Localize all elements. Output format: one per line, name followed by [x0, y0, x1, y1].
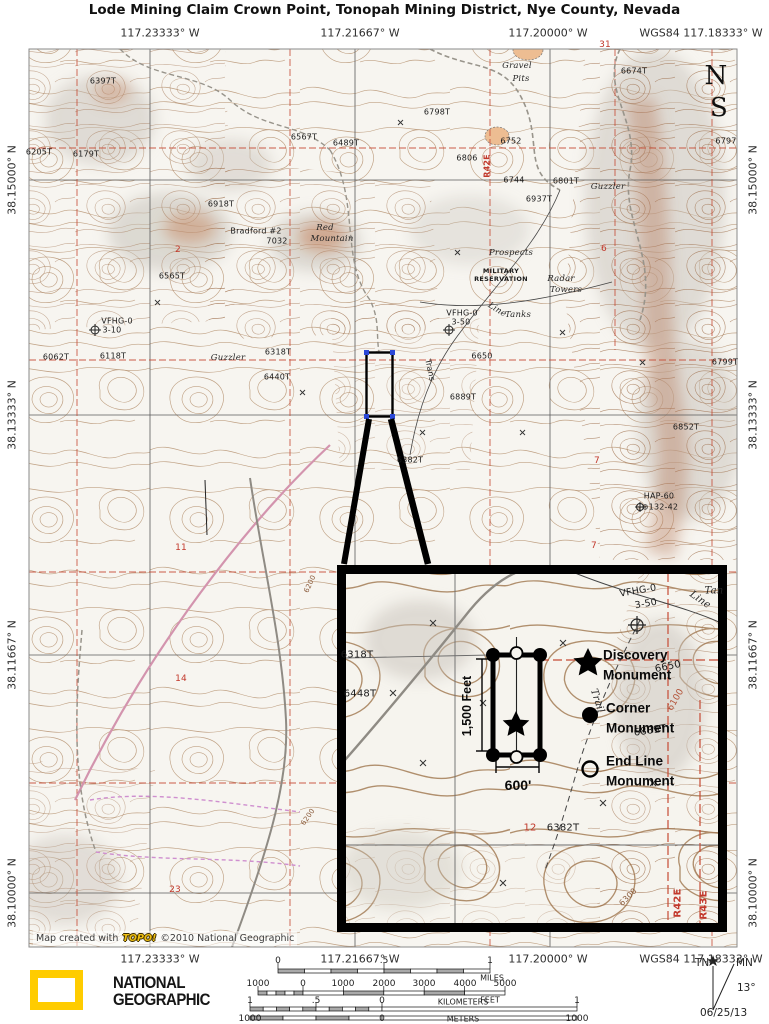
feet-tick-1000: 1000	[332, 979, 355, 989]
feature-label: Radar	[547, 274, 574, 284]
elevation-label: 6318T	[341, 650, 374, 661]
coord-top-2: 117.21667° W	[320, 27, 399, 40]
feature-label: Tan	[705, 586, 724, 597]
feet-tick-4000: 4000	[454, 979, 477, 989]
end-line-monument-marker-bottom	[511, 751, 523, 763]
feature-label: MILITARY	[483, 267, 519, 275]
km-tick-1r: 1	[574, 996, 580, 1006]
declination-angle: 13°	[737, 982, 756, 994]
coord-top-1: 117.23333° W	[120, 27, 199, 40]
claim-label: ⊕132-42	[642, 503, 678, 512]
section-number: 7	[591, 541, 597, 551]
feature-label: Towers	[550, 285, 582, 295]
coord-left-1: 38.15000° N	[6, 145, 19, 215]
m-tick-0: 0	[379, 1014, 385, 1024]
map-credit: Map created with TOPO! ©2010 National Ge…	[33, 931, 297, 946]
section-number: 6	[601, 244, 607, 254]
elevation-label: 6889T	[450, 393, 476, 402]
km-unit: KILOMETERS	[438, 998, 489, 1007]
feature-label: Tanks	[505, 310, 531, 320]
m-tick-1000l: 1000	[239, 1014, 262, 1024]
range-name-letter: N	[705, 61, 728, 91]
miles-tick-1: 1	[487, 956, 493, 966]
feet-tick-5000: 5000	[494, 979, 517, 989]
elevation-label: 6062T	[43, 353, 69, 362]
elevation-label: 7032	[266, 237, 287, 246]
feet-tick-2000: 2000	[373, 979, 396, 989]
coord-top-4: WGS84 117.18333° W	[639, 27, 762, 40]
legend-endline-line1: End Line	[606, 754, 663, 769]
claim-label: 3-50	[452, 318, 471, 327]
scale-bars	[250, 963, 577, 1020]
range-line-label: R42E	[483, 154, 492, 178]
coord-top-3: 117.20000° W	[508, 27, 587, 40]
section-number: 31	[599, 40, 611, 50]
claim-label: VFHG-0	[101, 317, 132, 326]
claim-width-dimension: 600'	[505, 777, 532, 793]
elevation-label: 6397T	[90, 77, 116, 86]
m-unit: METERS	[447, 1015, 480, 1024]
magnetic-north-label: MN	[736, 957, 753, 969]
feet-tick-m1000: 1000	[247, 979, 270, 989]
elevation-label: 6797	[715, 137, 736, 146]
feet-tick-0: 0	[300, 979, 306, 989]
claim-label: VFHG-0	[446, 309, 477, 318]
coord-left-4: 38.10000° N	[6, 858, 19, 928]
elevation-label: 6744	[503, 176, 524, 185]
miles-tick-half: .5	[380, 956, 389, 966]
elevation-label: 6567T	[291, 133, 317, 142]
elevation-label: 6798T	[424, 108, 450, 117]
credit-suffix: ©2010 National Geographic	[160, 933, 294, 944]
range-line-label: R42E	[673, 888, 684, 917]
elevation-label: 6799T	[712, 358, 738, 367]
elevation-label: 6674T	[621, 67, 647, 76]
national-geographic-frame-icon	[30, 970, 83, 1010]
section-number: 12	[523, 823, 536, 834]
elevation-label: 6118T	[100, 352, 126, 361]
m-tick-1000r: 1000	[566, 1014, 589, 1024]
true-north-label: TN	[695, 957, 709, 969]
km-tick-1l: 1	[247, 996, 253, 1006]
feature-label: Mountain	[310, 234, 353, 244]
coord-left-3: 38.11667° N	[6, 620, 19, 690]
map-vector-layer	[0, 0, 769, 1024]
legend-corner-line1: Corner	[606, 701, 650, 716]
map-date: 06/25/13	[700, 1007, 747, 1019]
km-tick-half: .5	[312, 996, 321, 1006]
legend-discovery-line2: Monument	[603, 668, 671, 683]
feature-label: RESERVATION	[474, 275, 528, 283]
section-number: 14	[175, 674, 187, 684]
coord-left-2: 38.13333° N	[6, 380, 19, 450]
credit-prefix: Map created with	[36, 933, 118, 944]
logo-line2: GEOGRAPHIC	[113, 990, 210, 1010]
legend-discovery-line1: Discovery	[603, 648, 668, 663]
elevation-label: 6565T	[159, 272, 185, 281]
km-tick-0: 0	[379, 996, 385, 1006]
feature-label: Prospects	[489, 248, 533, 258]
legend-corner-line2: Monument	[606, 721, 674, 736]
section-number: 23	[169, 885, 181, 895]
elevation-label: 6382T	[547, 823, 580, 834]
range-name-letter: S	[710, 93, 728, 123]
coord-right-4: 38.10000° N	[747, 858, 760, 928]
claim-height-dimension: 1,500 Feet	[460, 676, 474, 736]
feature-label: Pits	[512, 74, 529, 84]
elevation-label: 6448T	[344, 689, 377, 700]
inset-map-canvas	[340, 573, 719, 924]
section-number: 7	[594, 456, 600, 466]
coord-bottom-1: 117.23333° W	[120, 953, 199, 966]
end-line-monument-marker-top	[511, 647, 523, 659]
feet-tick-3000: 3000	[413, 979, 436, 989]
range-line-label: R43E	[699, 890, 710, 919]
feature-label: Bradford #2	[230, 227, 281, 236]
topo-logo: TOPO!	[122, 933, 156, 944]
elevation-label: 6179T	[73, 150, 99, 159]
coord-bottom-3: 117.20000° W	[508, 953, 587, 966]
elevation-label: 6852T	[673, 423, 699, 432]
elevation-label: 6937T	[526, 195, 552, 204]
topo-map-page: Lode Mining Claim Crown Point, Tonopah M…	[0, 0, 769, 1024]
section-number: 11	[175, 543, 187, 553]
elevation-label: 6801T	[553, 177, 579, 186]
coord-right-3: 38.11667° N	[747, 620, 760, 690]
elevation-label: 6205T	[26, 148, 52, 157]
feature-label: Gravel	[502, 61, 532, 71]
coord-right-2: 38.13333° N	[747, 380, 760, 450]
feature-label: Red	[316, 223, 333, 233]
elevation-label: 6752	[500, 137, 521, 146]
coord-right-1: 38.15000° N	[747, 145, 760, 215]
miles-tick-0: 0	[275, 956, 281, 966]
elevation-label: 6650	[471, 352, 492, 361]
legend-endline-line2: Monument	[606, 774, 674, 789]
elevation-label: 6806	[456, 154, 477, 163]
claim-label: HAP-60	[644, 492, 674, 501]
elevation-label: 6440T	[264, 373, 290, 382]
claim-label: 3-10	[103, 326, 122, 335]
elevation-label: 6318T	[265, 348, 291, 357]
feature-label: Guzzler	[591, 182, 625, 192]
map-title: Lode Mining Claim Crown Point, Tonopah M…	[0, 2, 769, 18]
feature-label: Guzzler	[211, 353, 245, 363]
elevation-label: 6918T	[208, 200, 234, 209]
elevation-label: 6382T	[397, 456, 423, 465]
section-number: 2	[175, 245, 181, 255]
elevation-label: 6489T	[333, 139, 359, 148]
